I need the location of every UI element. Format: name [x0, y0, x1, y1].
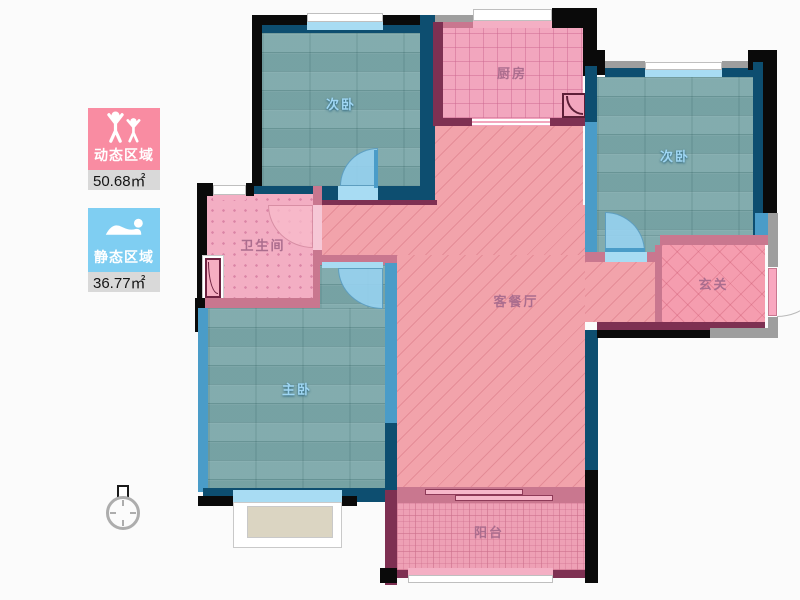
- compass-tick-right: [130, 512, 136, 514]
- wall: [585, 122, 597, 252]
- legend-dynamic-card[interactable]: 动态区域: [88, 108, 160, 170]
- wall: [380, 568, 397, 583]
- living-room-floor: [322, 205, 585, 255]
- wall: [763, 55, 777, 213]
- living-room-floor: [585, 262, 655, 322]
- wall: [597, 330, 710, 338]
- door-opening: [313, 205, 322, 250]
- master-bedroom-label: 主卧: [237, 378, 357, 398]
- window: [645, 62, 722, 70]
- kitchen-doorway: [472, 119, 550, 121]
- window: [307, 13, 383, 22]
- floorplan-viewer: 动态区域 50.68㎡ 静态区域 36.77㎡ 次卧: [0, 0, 800, 600]
- legend-static-label: 静态区域: [94, 247, 154, 267]
- bay-window-sill: [233, 490, 342, 502]
- window-sill: [473, 21, 552, 28]
- wall: [385, 263, 397, 423]
- kitchen-doorway: [472, 123, 550, 125]
- compass-tick-bottom: [122, 520, 124, 526]
- bay-window-seat: [247, 506, 333, 538]
- wall: [710, 328, 778, 338]
- wall: [433, 22, 443, 126]
- bedroom-a-label: 次卧: [281, 93, 401, 113]
- kitchen-label: 厨房: [472, 63, 552, 81]
- wall: [585, 66, 597, 122]
- people-icon: [88, 108, 160, 145]
- hallway-label: 玄关: [662, 274, 765, 292]
- wall: [198, 308, 208, 492]
- window-sill: [213, 195, 246, 200]
- door-opening: [605, 252, 647, 262]
- wall: [246, 183, 254, 196]
- sleeping-person-icon: [88, 208, 160, 247]
- legend-dynamic-value: 50.68㎡: [88, 170, 160, 190]
- master-bedroom-floor: [208, 308, 385, 492]
- compass-tick-left: [110, 512, 116, 514]
- legend-static-card[interactable]: 静态区域: [88, 208, 160, 272]
- wall: [585, 330, 598, 470]
- entry-door-leaf: [768, 268, 777, 316]
- wall: [342, 496, 357, 506]
- window: [213, 185, 246, 195]
- window: [755, 213, 769, 235]
- door-leaf: [605, 248, 645, 252]
- living-room-floor: [435, 126, 583, 205]
- wall: [655, 245, 662, 322]
- window: [645, 70, 722, 77]
- legend-static-value: 36.77㎡: [88, 272, 160, 292]
- wall: [660, 235, 770, 245]
- wall: [753, 62, 763, 235]
- window: [307, 22, 383, 30]
- balcony-label: 阳台: [429, 522, 549, 540]
- wall: [197, 183, 213, 196]
- sliding-door: [455, 495, 553, 501]
- compass-tick-top: [122, 500, 124, 506]
- wall: [252, 15, 262, 192]
- entry-door-swing: [777, 267, 800, 317]
- window-sill: [408, 568, 553, 575]
- bathroom-label: 卫生间: [217, 236, 309, 252]
- door-opening: [338, 186, 378, 200]
- bedroom-b-label: 次卧: [615, 145, 735, 165]
- window: [473, 9, 552, 21]
- living-room-label: 客餐厅: [456, 290, 576, 310]
- wall: [197, 298, 330, 308]
- wall: [385, 423, 397, 490]
- legend-dynamic-label: 动态区域: [94, 145, 154, 165]
- wall: [585, 470, 598, 583]
- window: [408, 575, 553, 583]
- wall: [198, 496, 233, 506]
- door-leaf: [374, 150, 378, 188]
- wall: [605, 61, 645, 68]
